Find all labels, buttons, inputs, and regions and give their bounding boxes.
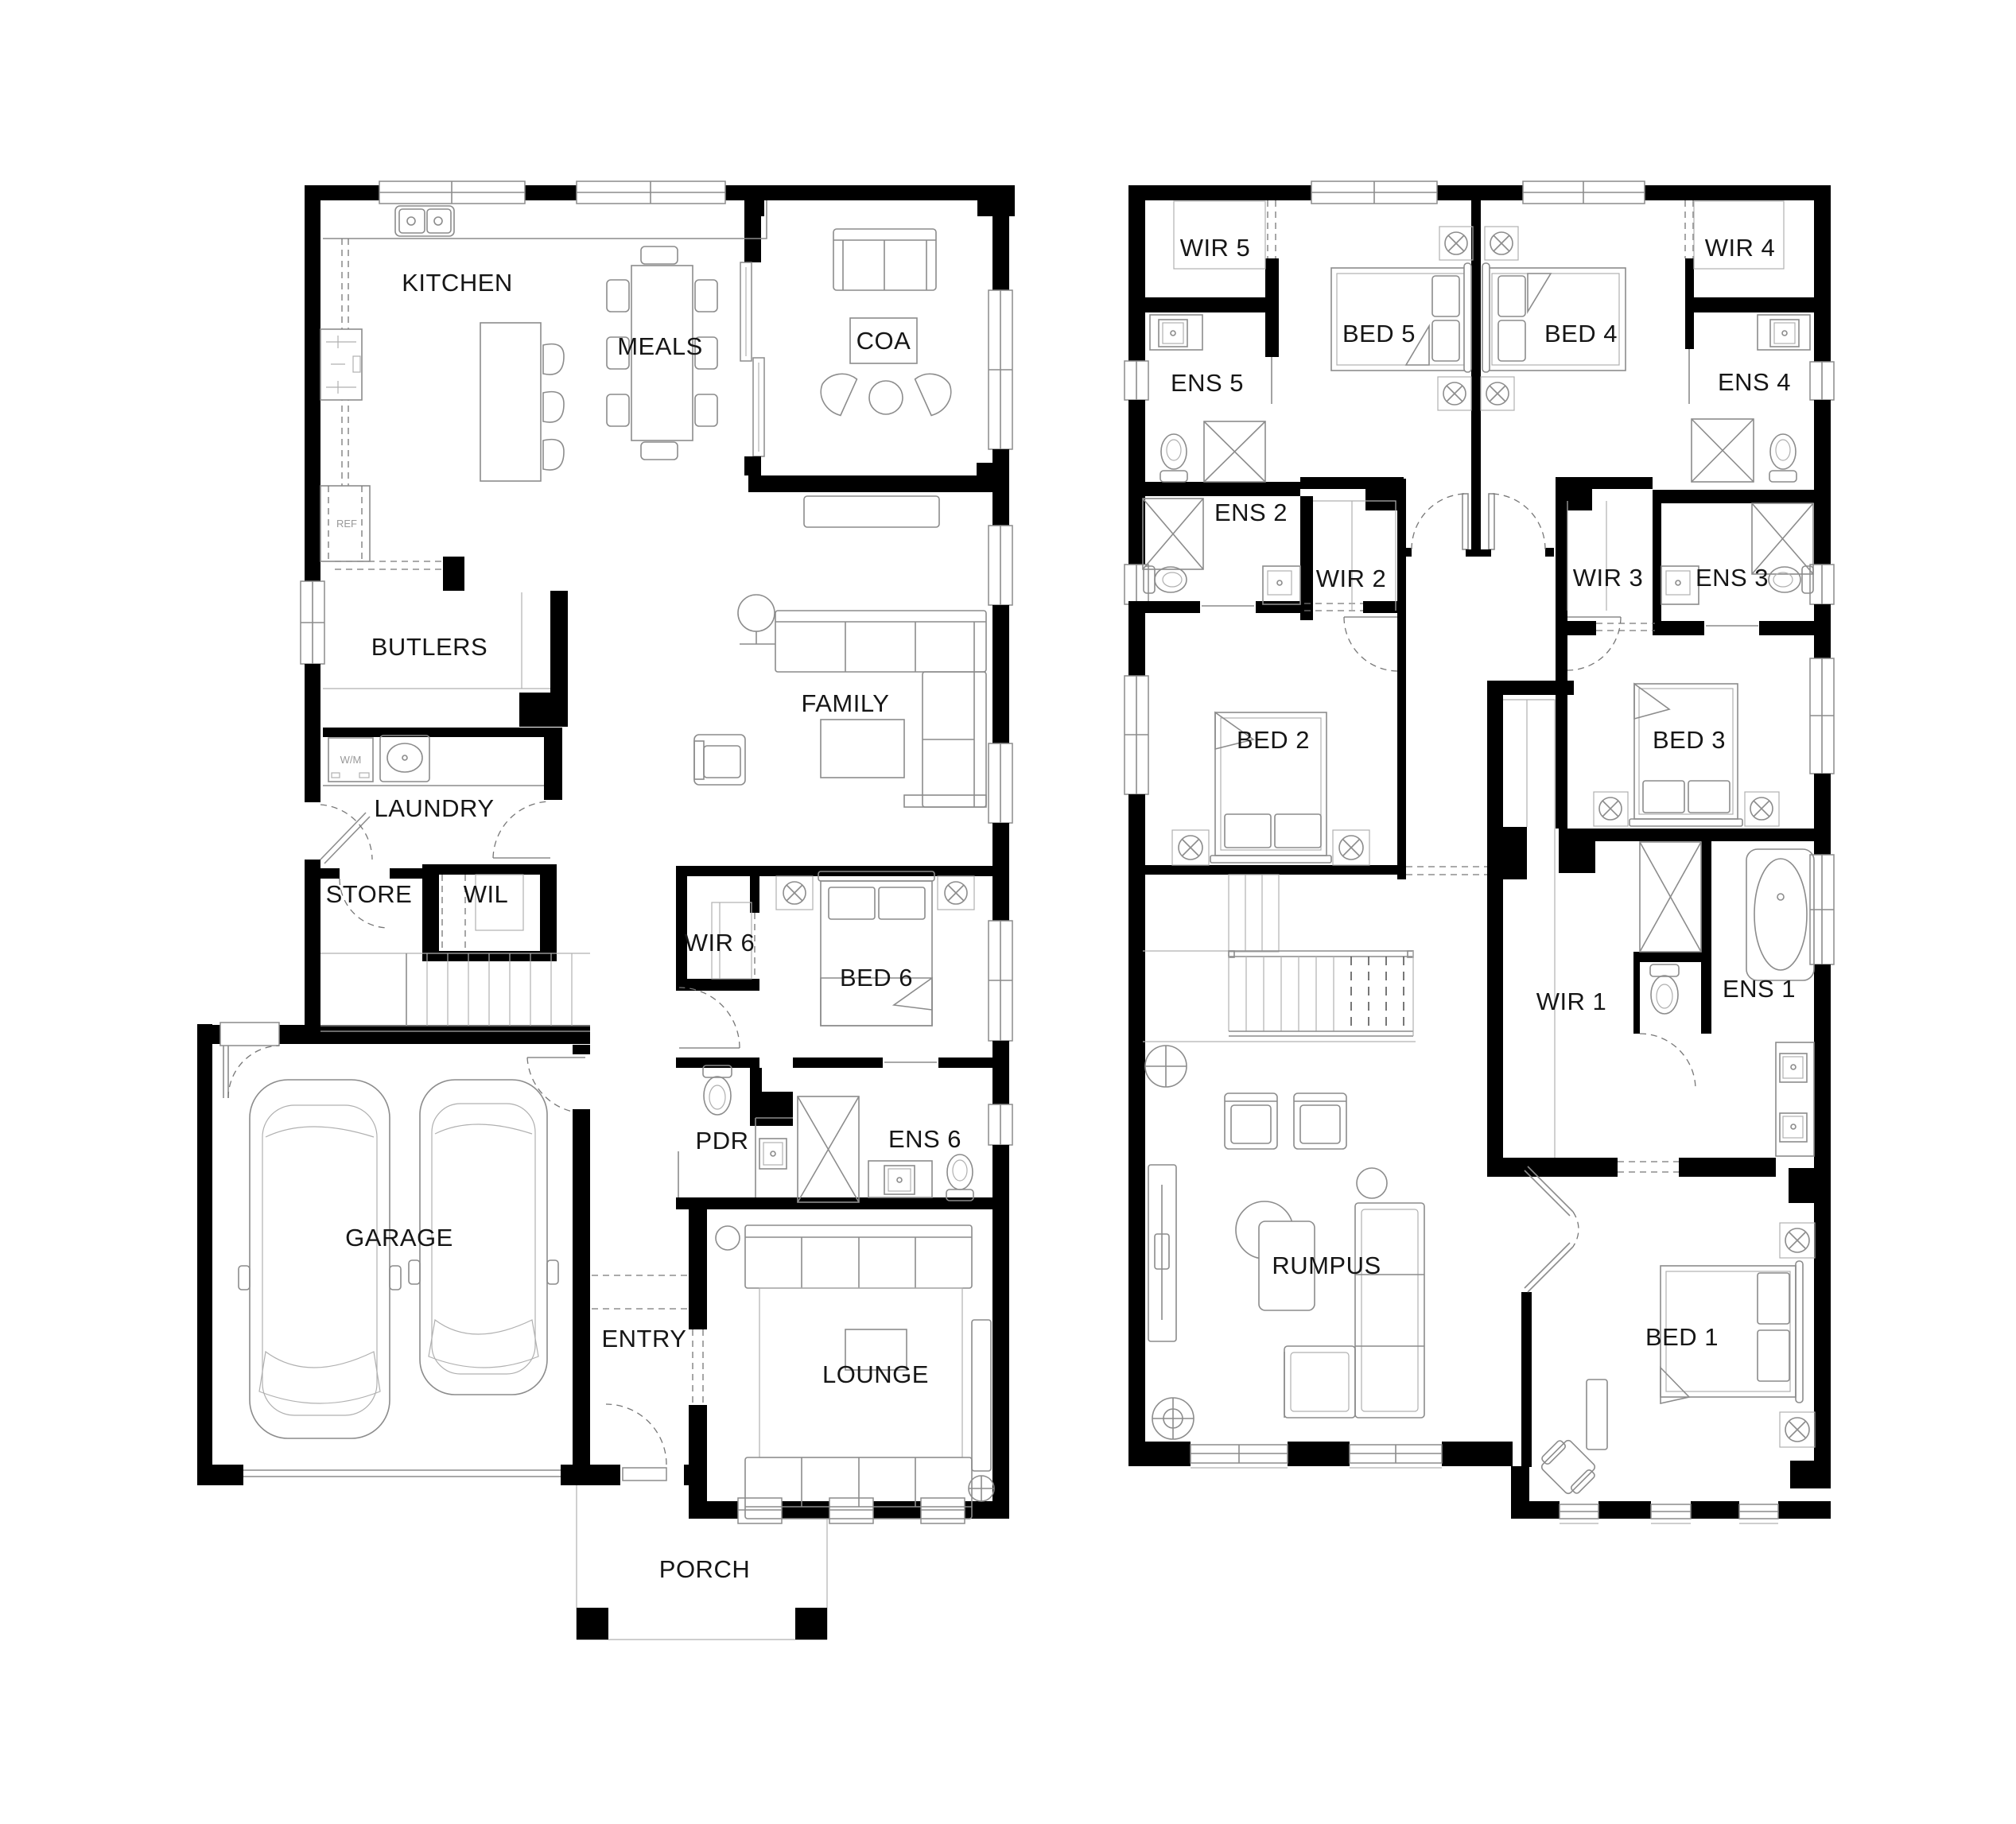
svg-text:BED 5: BED 5 [1342,320,1416,347]
svg-text:BUTLERS: BUTLERS [371,633,487,661]
svg-text:ENS 3: ENS 3 [1696,564,1769,592]
svg-text:BED 1: BED 1 [1645,1323,1719,1351]
svg-text:WIR 3: WIR 3 [1573,564,1644,592]
svg-text:STORE: STORE [326,880,413,908]
svg-text:BED 4: BED 4 [1544,320,1618,347]
svg-text:KITCHEN: KITCHEN [402,269,513,297]
svg-text:RUMPUS: RUMPUS [1272,1252,1381,1279]
svg-text:PORCH: PORCH [659,1555,750,1583]
svg-text:LAUNDRY: LAUNDRY [374,794,494,822]
svg-text:PDR: PDR [696,1127,749,1155]
svg-text:ENTRY: ENTRY [601,1325,686,1352]
svg-text:COA: COA [857,327,911,355]
svg-text:MEALS: MEALS [617,332,703,360]
svg-text:WIR 6: WIR 6 [685,929,756,957]
svg-text:ENS 6: ENS 6 [888,1125,961,1153]
svg-text:FAMILY: FAMILY [802,689,890,717]
svg-text:WIR 5: WIR 5 [1180,234,1251,262]
svg-text:BED 3: BED 3 [1653,726,1726,754]
svg-text:WIL: WIL [464,880,509,908]
svg-text:GARAGE: GARAGE [345,1224,453,1252]
svg-text:ENS 2: ENS 2 [1214,499,1288,526]
svg-text:WIR 1: WIR 1 [1536,988,1607,1015]
svg-text:LOUNGE: LOUNGE [822,1360,929,1388]
svg-text:W/M: W/M [340,754,362,766]
svg-text:BED 2: BED 2 [1237,726,1310,754]
svg-text:ENS 5: ENS 5 [1171,369,1244,397]
svg-text:REF: REF [336,518,357,530]
svg-text:ENS 4: ENS 4 [1718,368,1791,396]
svg-text:ENS 1: ENS 1 [1723,975,1796,1003]
svg-text:WIR 4: WIR 4 [1705,234,1776,262]
svg-text:BED 6: BED 6 [840,964,913,992]
svg-text:WIR 2: WIR 2 [1316,565,1387,592]
